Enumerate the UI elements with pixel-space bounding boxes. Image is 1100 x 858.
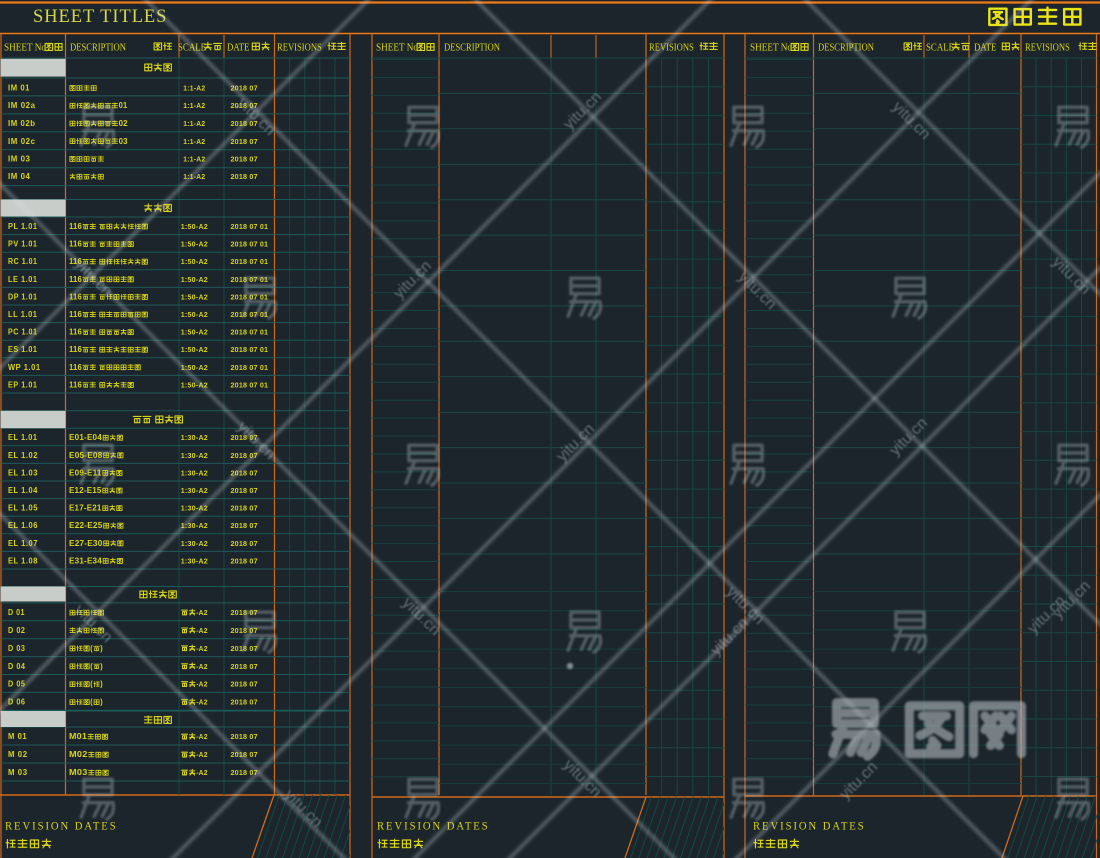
svg-text:M 02: M 02 <box>8 750 28 759</box>
svg-text:E01-E04: E01-E04 <box>69 433 102 442</box>
svg-text:M 01: M 01 <box>8 732 27 741</box>
svg-text:1:50-A2: 1:50-A2 <box>181 328 208 337</box>
svg-text:2018 07: 2018 07 <box>231 155 258 164</box>
svg-text:SHEET No: SHEET No <box>4 43 46 54</box>
svg-text:IM 02a: IM 02a <box>8 101 36 110</box>
svg-text:EP 1.01: EP 1.01 <box>8 380 38 389</box>
svg-text:2018 07: 2018 07 <box>231 486 258 495</box>
svg-text:2018 07 01: 2018 07 01 <box>231 363 269 372</box>
svg-text:SHEET No: SHEET No <box>750 43 792 54</box>
svg-text:): ) <box>100 680 103 689</box>
svg-text:2018 07: 2018 07 <box>231 172 258 181</box>
svg-text:LL 1.01: LL 1.01 <box>8 310 38 319</box>
svg-text:E27-E30: E27-E30 <box>69 539 103 548</box>
svg-text:1:30-A2: 1:30-A2 <box>181 451 208 460</box>
svg-text:02: 02 <box>119 119 129 128</box>
svg-text:2018 07: 2018 07 <box>231 680 258 689</box>
svg-text:IM 04: IM 04 <box>8 172 31 181</box>
svg-text:M01: M01 <box>69 732 87 741</box>
svg-text:-A2: -A2 <box>196 662 208 671</box>
svg-text:): ) <box>100 662 103 671</box>
svg-text:1:50-A2: 1:50-A2 <box>181 275 208 284</box>
svg-text:E12-E15: E12-E15 <box>69 486 102 495</box>
svg-text:1:30-A2: 1:30-A2 <box>181 486 208 495</box>
svg-text:1:30-A2: 1:30-A2 <box>181 468 208 477</box>
svg-text:(: ( <box>90 644 93 653</box>
svg-text:): ) <box>100 698 103 707</box>
svg-text:SHEET TITLES: SHEET TITLES <box>33 6 167 27</box>
svg-text:D 04: D 04 <box>8 662 26 671</box>
svg-text:(: ( <box>90 698 93 707</box>
svg-text:-A2: -A2 <box>196 768 208 777</box>
svg-text:1:50-A2: 1:50-A2 <box>181 257 208 266</box>
svg-text:RC 1.01: RC 1.01 <box>8 257 38 266</box>
svg-text:): ) <box>100 644 103 653</box>
svg-text:1:30-A2: 1:30-A2 <box>181 539 208 548</box>
svg-text:1:1-A2: 1:1-A2 <box>183 84 205 93</box>
svg-text:-A2: -A2 <box>196 680 208 689</box>
svg-text:IM 02b: IM 02b <box>8 119 36 128</box>
svg-text:116: 116 <box>69 363 82 372</box>
svg-text:-A2: -A2 <box>196 750 208 759</box>
svg-text:DP 1.01: DP 1.01 <box>8 292 38 301</box>
svg-text:-A2: -A2 <box>196 608 208 617</box>
svg-text:01: 01 <box>119 101 128 110</box>
svg-text:REVISION DATES: REVISION DATES <box>377 819 490 833</box>
svg-text:SHEET No: SHEET No <box>376 43 418 54</box>
svg-text:1:50-A2: 1:50-A2 <box>181 345 208 354</box>
svg-text:-A2: -A2 <box>196 698 208 707</box>
svg-text:M02: M02 <box>69 750 88 759</box>
svg-text:PV 1.01: PV 1.01 <box>8 240 38 249</box>
svg-text:1:30-A2: 1:30-A2 <box>181 556 208 565</box>
svg-text:EL 1.02: EL 1.02 <box>8 451 38 460</box>
svg-text:M 03: M 03 <box>8 768 28 777</box>
svg-text:2018 07: 2018 07 <box>231 732 258 741</box>
svg-text:2018 07 01: 2018 07 01 <box>231 222 269 231</box>
svg-text:1:1-A2: 1:1-A2 <box>183 137 205 146</box>
svg-text:-A2: -A2 <box>196 644 208 653</box>
svg-text:DESCRIPTION: DESCRIPTION <box>444 43 500 54</box>
svg-text:D 03: D 03 <box>8 644 26 653</box>
svg-text:EL 1.01: EL 1.01 <box>8 433 38 442</box>
svg-text:EL 1.03: EL 1.03 <box>8 468 38 477</box>
svg-text:(: ( <box>90 680 93 689</box>
svg-text:1:1-A2: 1:1-A2 <box>183 101 205 110</box>
svg-text:2018 07: 2018 07 <box>231 521 258 530</box>
svg-text:03: 03 <box>119 137 129 146</box>
svg-text:116: 116 <box>69 345 82 354</box>
svg-text:2018 07: 2018 07 <box>231 556 258 565</box>
svg-text:1:50-A2: 1:50-A2 <box>181 240 208 249</box>
svg-text:2018 07 01: 2018 07 01 <box>231 310 269 319</box>
svg-text:1:30-A2: 1:30-A2 <box>181 433 208 442</box>
svg-text:E17-E21: E17-E21 <box>69 504 102 513</box>
svg-text:116: 116 <box>69 310 82 319</box>
svg-text:1:50-A2: 1:50-A2 <box>181 222 208 231</box>
svg-text:2018 07: 2018 07 <box>231 504 258 513</box>
svg-text:1:1-A2: 1:1-A2 <box>183 155 205 164</box>
svg-text:M03: M03 <box>69 768 88 777</box>
svg-text:IM 01: IM 01 <box>8 84 30 93</box>
svg-text:EL 1.04: EL 1.04 <box>8 486 38 495</box>
svg-text:1:1-A2: 1:1-A2 <box>183 119 205 128</box>
svg-text:LE 1.01: LE 1.01 <box>8 275 38 284</box>
svg-text:IM 03: IM 03 <box>8 155 31 164</box>
svg-text:2018 07 01: 2018 07 01 <box>231 380 269 389</box>
svg-text:1:50-A2: 1:50-A2 <box>181 292 208 301</box>
svg-text:2018 07: 2018 07 <box>231 698 258 707</box>
svg-text:D 02: D 02 <box>8 626 26 635</box>
svg-text:REVISION DATES: REVISION DATES <box>5 819 118 833</box>
svg-text:2018 07 01: 2018 07 01 <box>231 240 269 249</box>
svg-text:SCALE: SCALE <box>926 43 954 54</box>
svg-text:2018 07: 2018 07 <box>231 539 258 548</box>
svg-text:WP 1.01: WP 1.01 <box>8 363 41 372</box>
svg-text:116: 116 <box>69 222 82 231</box>
svg-text:IM 02c: IM 02c <box>8 137 36 146</box>
svg-text:1:50-A2: 1:50-A2 <box>181 310 208 319</box>
svg-text:D 01: D 01 <box>8 608 25 617</box>
svg-text:DESCRIPTION: DESCRIPTION <box>818 43 874 54</box>
svg-text:116: 116 <box>69 240 82 249</box>
svg-text:-A2: -A2 <box>196 732 208 741</box>
svg-text:EL 1.05: EL 1.05 <box>8 504 38 513</box>
svg-text:2018 07 01: 2018 07 01 <box>231 257 269 266</box>
svg-text:2018 07 01: 2018 07 01 <box>231 328 269 337</box>
svg-text:116: 116 <box>69 328 82 337</box>
svg-text:2018 07: 2018 07 <box>231 662 258 671</box>
svg-text:EL 1.08: EL 1.08 <box>8 556 38 565</box>
svg-text:DATE: DATE <box>227 43 249 54</box>
svg-text:(: ( <box>90 662 93 671</box>
svg-text:2018 07 01: 2018 07 01 <box>231 345 269 354</box>
svg-text:E31-E34: E31-E34 <box>69 556 102 565</box>
svg-text:DESCRIPTION: DESCRIPTION <box>70 43 126 54</box>
svg-text:E22-E25: E22-E25 <box>69 521 103 530</box>
svg-text:PL 1.01: PL 1.01 <box>8 222 38 231</box>
svg-text:REVISIONS: REVISIONS <box>1025 43 1070 54</box>
svg-text:2018 07: 2018 07 <box>231 137 258 146</box>
svg-text:116: 116 <box>69 380 82 389</box>
svg-text:-A2: -A2 <box>196 626 208 635</box>
